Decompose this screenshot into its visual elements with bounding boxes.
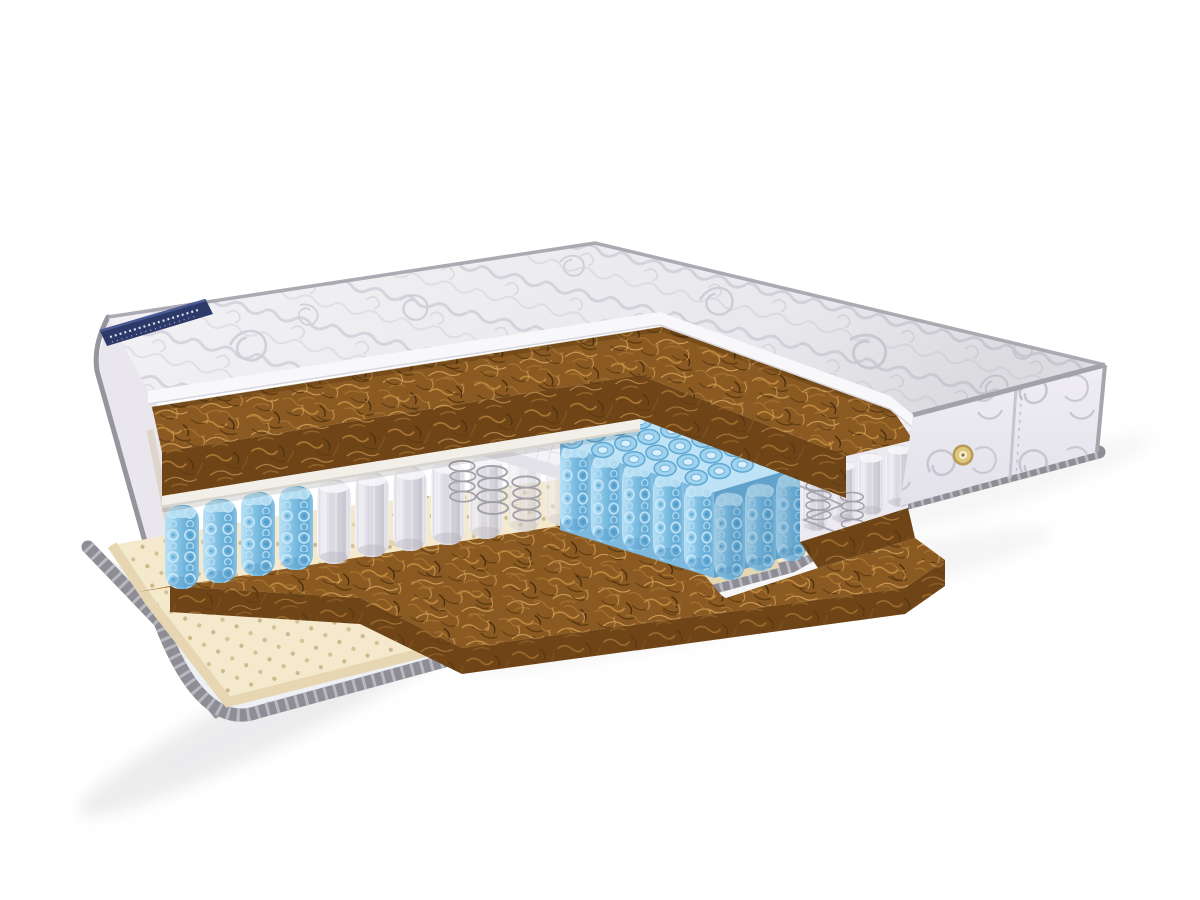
air-vent-button — [953, 445, 974, 466]
product-photo-stage — [0, 0, 1200, 900]
mattress-cutaway-photo — [0, 0, 1200, 900]
